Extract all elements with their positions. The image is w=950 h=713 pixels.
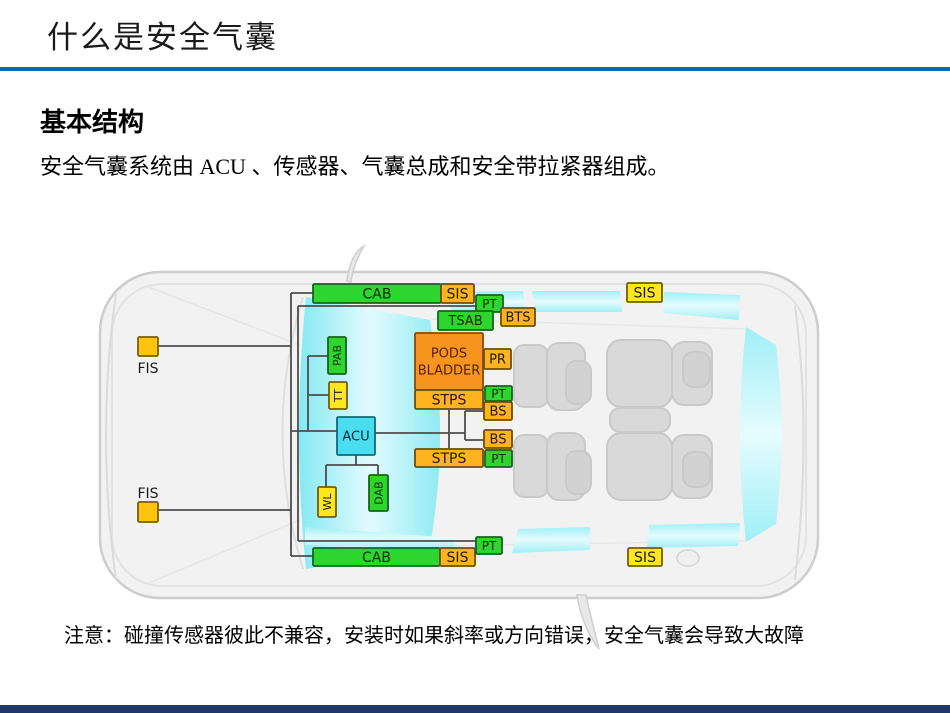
svg-text:SIS: SIS <box>634 286 656 302</box>
svg-text:SIS: SIS <box>447 287 469 303</box>
svg-text:PT: PT <box>491 387 506 401</box>
svg-text:TSAB: TSAB <box>447 314 482 329</box>
component-bs-top: BS <box>484 402 512 420</box>
component-stps-bottom: STPS <box>415 449 483 467</box>
svg-text:BS: BS <box>490 405 507 420</box>
svg-text:STPS: STPS <box>432 451 467 467</box>
svg-text:PR: PR <box>489 353 506 368</box>
component-tt: TT <box>329 382 347 409</box>
slide: 什么是安全气囊 基本结构 安全气囊系统由 ACU 、传感器、气囊总成和安全带拉紧… <box>0 0 950 713</box>
svg-text:SIS: SIS <box>634 550 656 566</box>
component-pt-mid-top: PT <box>485 386 512 401</box>
svg-text:PAB: PAB <box>331 345 344 366</box>
svg-text:WL: WL <box>321 493 334 511</box>
component-pt-bottom: PT <box>476 537 502 554</box>
svg-text:STPS: STPS <box>432 393 467 409</box>
component-acu: ACU <box>337 417 375 455</box>
svg-text:CAB: CAB <box>363 287 392 303</box>
svg-text:BTS: BTS <box>505 311 530 326</box>
component-pods-bladder: PODSBLADDER <box>415 333 483 390</box>
component-bts: BTS <box>501 308 535 326</box>
component-tsab: TSAB <box>438 311 493 330</box>
svg-text:ACU: ACU <box>342 430 369 445</box>
component-sis-top-left: SIS <box>441 284 474 303</box>
component-pr: PR <box>484 349 511 369</box>
footer-bar <box>0 705 950 713</box>
svg-text:PT: PT <box>482 297 497 311</box>
svg-text:BS: BS <box>490 433 507 448</box>
svg-text:DAB: DAB <box>372 481 385 504</box>
component-stps-top: STPS <box>415 390 483 409</box>
component-pab: PAB <box>328 337 346 374</box>
airbag-system-diagram: CABSISPTTSABBTSSISFISPABTTPODSBLADDERPRS… <box>0 0 950 713</box>
component-sis-bottom-left: SIS <box>440 548 475 566</box>
svg-text:SIS: SIS <box>447 550 469 566</box>
component-cab-bottom: CAB <box>313 548 440 566</box>
svg-text:TT: TT <box>332 389 345 404</box>
rear-window <box>740 327 782 542</box>
component-dab: DAB <box>369 475 388 511</box>
component-pt-mid-bottom: PT <box>485 450 512 467</box>
svg-text:FIS: FIS <box>137 486 158 502</box>
svg-text:CAB: CAB <box>362 550 391 566</box>
svg-text:FIS: FIS <box>137 361 158 377</box>
component-fis-rear: FIS <box>137 486 158 522</box>
component-pt-top: PT <box>476 295 503 312</box>
svg-text:PT: PT <box>482 539 497 553</box>
component-bs-mid: BS <box>484 430 512 448</box>
note-text: 注意：碰撞传感器彼此不兼容，安装时如果斜率或方向错误，安全气囊会导致大故障 <box>64 619 804 648</box>
component-sis-top-right: SIS <box>627 283 662 302</box>
component-cab-top: CAB <box>313 284 441 303</box>
component-sis-bottom-right: SIS <box>628 548 662 566</box>
svg-text:PT: PT <box>491 452 506 466</box>
component-wl: WL <box>318 487 336 517</box>
